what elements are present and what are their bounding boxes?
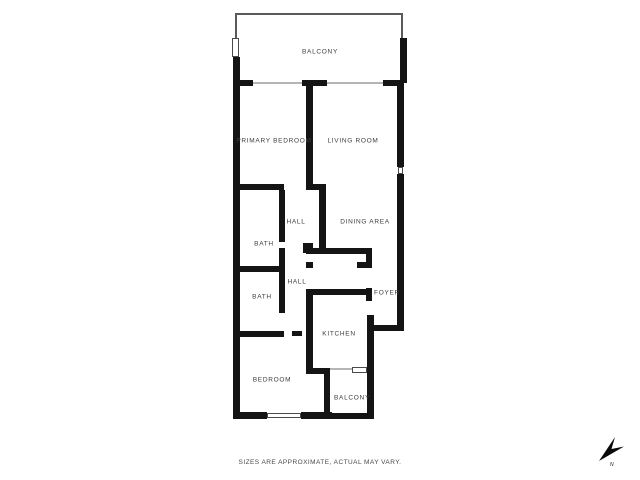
door-line (253, 82, 302, 84)
wall-segment (233, 412, 267, 419)
door-line (401, 15, 403, 38)
floorplan-page: BALCONYPRIMARY BEDROOMLIVING ROOMHALLDIN… (0, 0, 640, 480)
floor-plan: BALCONYPRIMARY BEDROOMLIVING ROOMHALLDIN… (0, 0, 640, 480)
window-marker (352, 367, 367, 373)
room-label-living-room: LIVING ROOM (327, 138, 378, 145)
wall-segment (279, 190, 285, 242)
room-label-bath: BATH (252, 294, 272, 301)
door-line (330, 368, 352, 370)
window-marker (232, 38, 239, 57)
wall-segment (239, 266, 279, 272)
room-label-hall: HALL (286, 219, 305, 226)
window-marker (267, 413, 301, 418)
wall-segment (366, 248, 372, 268)
wall-segment (306, 83, 313, 190)
window-marker (398, 167, 403, 174)
room-label-foyer: FOYER (374, 290, 400, 297)
wall-segment (237, 80, 253, 86)
door-line (327, 82, 383, 84)
wall-segment (307, 289, 367, 295)
wall-segment (306, 289, 313, 374)
wall-segment (236, 331, 284, 337)
room-label-bath: BATH (254, 241, 274, 248)
wall-segment (279, 248, 285, 313)
room-label-hall: HALL (287, 279, 306, 286)
wall-segment (233, 57, 240, 413)
door-line (235, 15, 237, 38)
room-label-balcony: BALCONY (302, 49, 338, 56)
wall-segment (397, 83, 404, 167)
room-label-dining-area: DINING AREA (340, 219, 390, 226)
room-label-kitchen: KITCHEN (322, 331, 355, 338)
wall-segment (239, 184, 284, 190)
room-label-balcony: BALCONY (334, 395, 370, 402)
north-compass: N (598, 437, 630, 471)
door-line (235, 13, 403, 15)
north-label: N (610, 462, 614, 468)
wall-segment (397, 174, 404, 331)
wall-segment (301, 412, 332, 419)
north-arrow-icon (598, 437, 625, 462)
room-label-bedroom: BEDROOM (253, 377, 292, 384)
wall-segment (367, 315, 374, 419)
wall-segment (292, 331, 302, 336)
room-label-primary-bedroom: PRIMARY BEDROOM (236, 138, 311, 145)
wall-segment (306, 262, 313, 268)
wall-segment (400, 38, 407, 83)
wall-segment (374, 325, 404, 331)
wall-segment (306, 248, 372, 254)
disclaimer-text: SIZES ARE APPROXIMATE, ACTUAL MAY VARY. (239, 459, 402, 466)
wall-segment (319, 190, 326, 254)
